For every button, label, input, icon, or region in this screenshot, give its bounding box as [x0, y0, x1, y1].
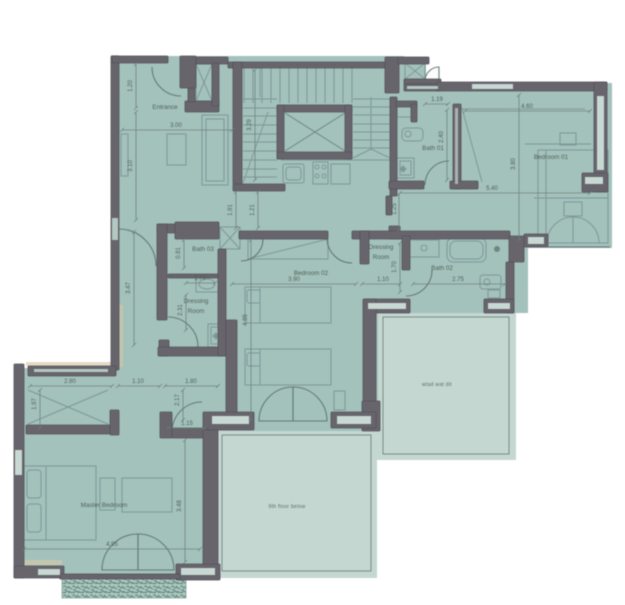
svg-text:9th floor below: 9th floor below	[268, 504, 305, 510]
svg-text:1.70: 1.70	[392, 261, 398, 273]
svg-text:2.17: 2.17	[175, 394, 181, 406]
svg-text:2.75: 2.75	[452, 277, 464, 283]
svg-text:1.19: 1.19	[431, 97, 443, 103]
svg-text:Room: Room	[373, 254, 390, 261]
svg-text:Dressing: Dressing	[184, 298, 209, 305]
svg-text:1.20: 1.20	[128, 80, 134, 92]
svg-text:3.80: 3.80	[511, 158, 517, 170]
svg-text:4.85: 4.85	[243, 314, 249, 326]
svg-text:Entrance: Entrance	[152, 104, 178, 111]
svg-text:Dressing: Dressing	[369, 244, 394, 251]
svg-text:Master Bedroom: Master Bedroom	[81, 502, 128, 509]
svg-text:Bath 03: Bath 03	[192, 246, 214, 253]
svg-text:4.95: 4.95	[106, 542, 118, 548]
svg-text:Bedroom 01: Bedroom 01	[534, 154, 569, 161]
svg-text:3.90: 3.90	[288, 277, 300, 283]
svg-text:1.91: 1.91	[228, 204, 234, 216]
svg-text:1.80: 1.80	[185, 379, 197, 385]
svg-text:3.00: 3.00	[170, 123, 182, 129]
svg-text:1.10: 1.10	[377, 277, 389, 283]
svg-text:1.21: 1.21	[250, 204, 256, 216]
svg-text:2.80: 2.80	[64, 379, 76, 385]
svg-text:3.10: 3.10	[128, 160, 134, 172]
svg-text:1.97: 1.97	[32, 398, 38, 410]
svg-text:3.48: 3.48	[177, 500, 183, 512]
svg-text:Bath 02: Bath 02	[431, 265, 453, 272]
svg-text:Room: Room	[188, 308, 205, 315]
svg-text:5.40: 5.40	[486, 186, 498, 192]
svg-text:4.60: 4.60	[521, 104, 533, 110]
svg-text:0.81: 0.81	[176, 247, 182, 259]
svg-text:2.40: 2.40	[439, 131, 445, 143]
svg-text:wtad wat dit: wtad wat dit	[422, 382, 452, 388]
svg-text:2.31: 2.31	[178, 304, 184, 316]
svg-text:1.10: 1.10	[132, 379, 144, 385]
svg-text:3.47: 3.47	[126, 282, 132, 294]
svg-text:3.29: 3.29	[247, 119, 253, 131]
svg-text:1.25: 1.25	[392, 203, 398, 215]
svg-text:Bedroom 02: Bedroom 02	[294, 270, 329, 277]
svg-text:Bath 01: Bath 01	[422, 145, 444, 152]
svg-text:1.15: 1.15	[181, 421, 193, 427]
svg-text:1.70: 1.70	[194, 276, 206, 282]
